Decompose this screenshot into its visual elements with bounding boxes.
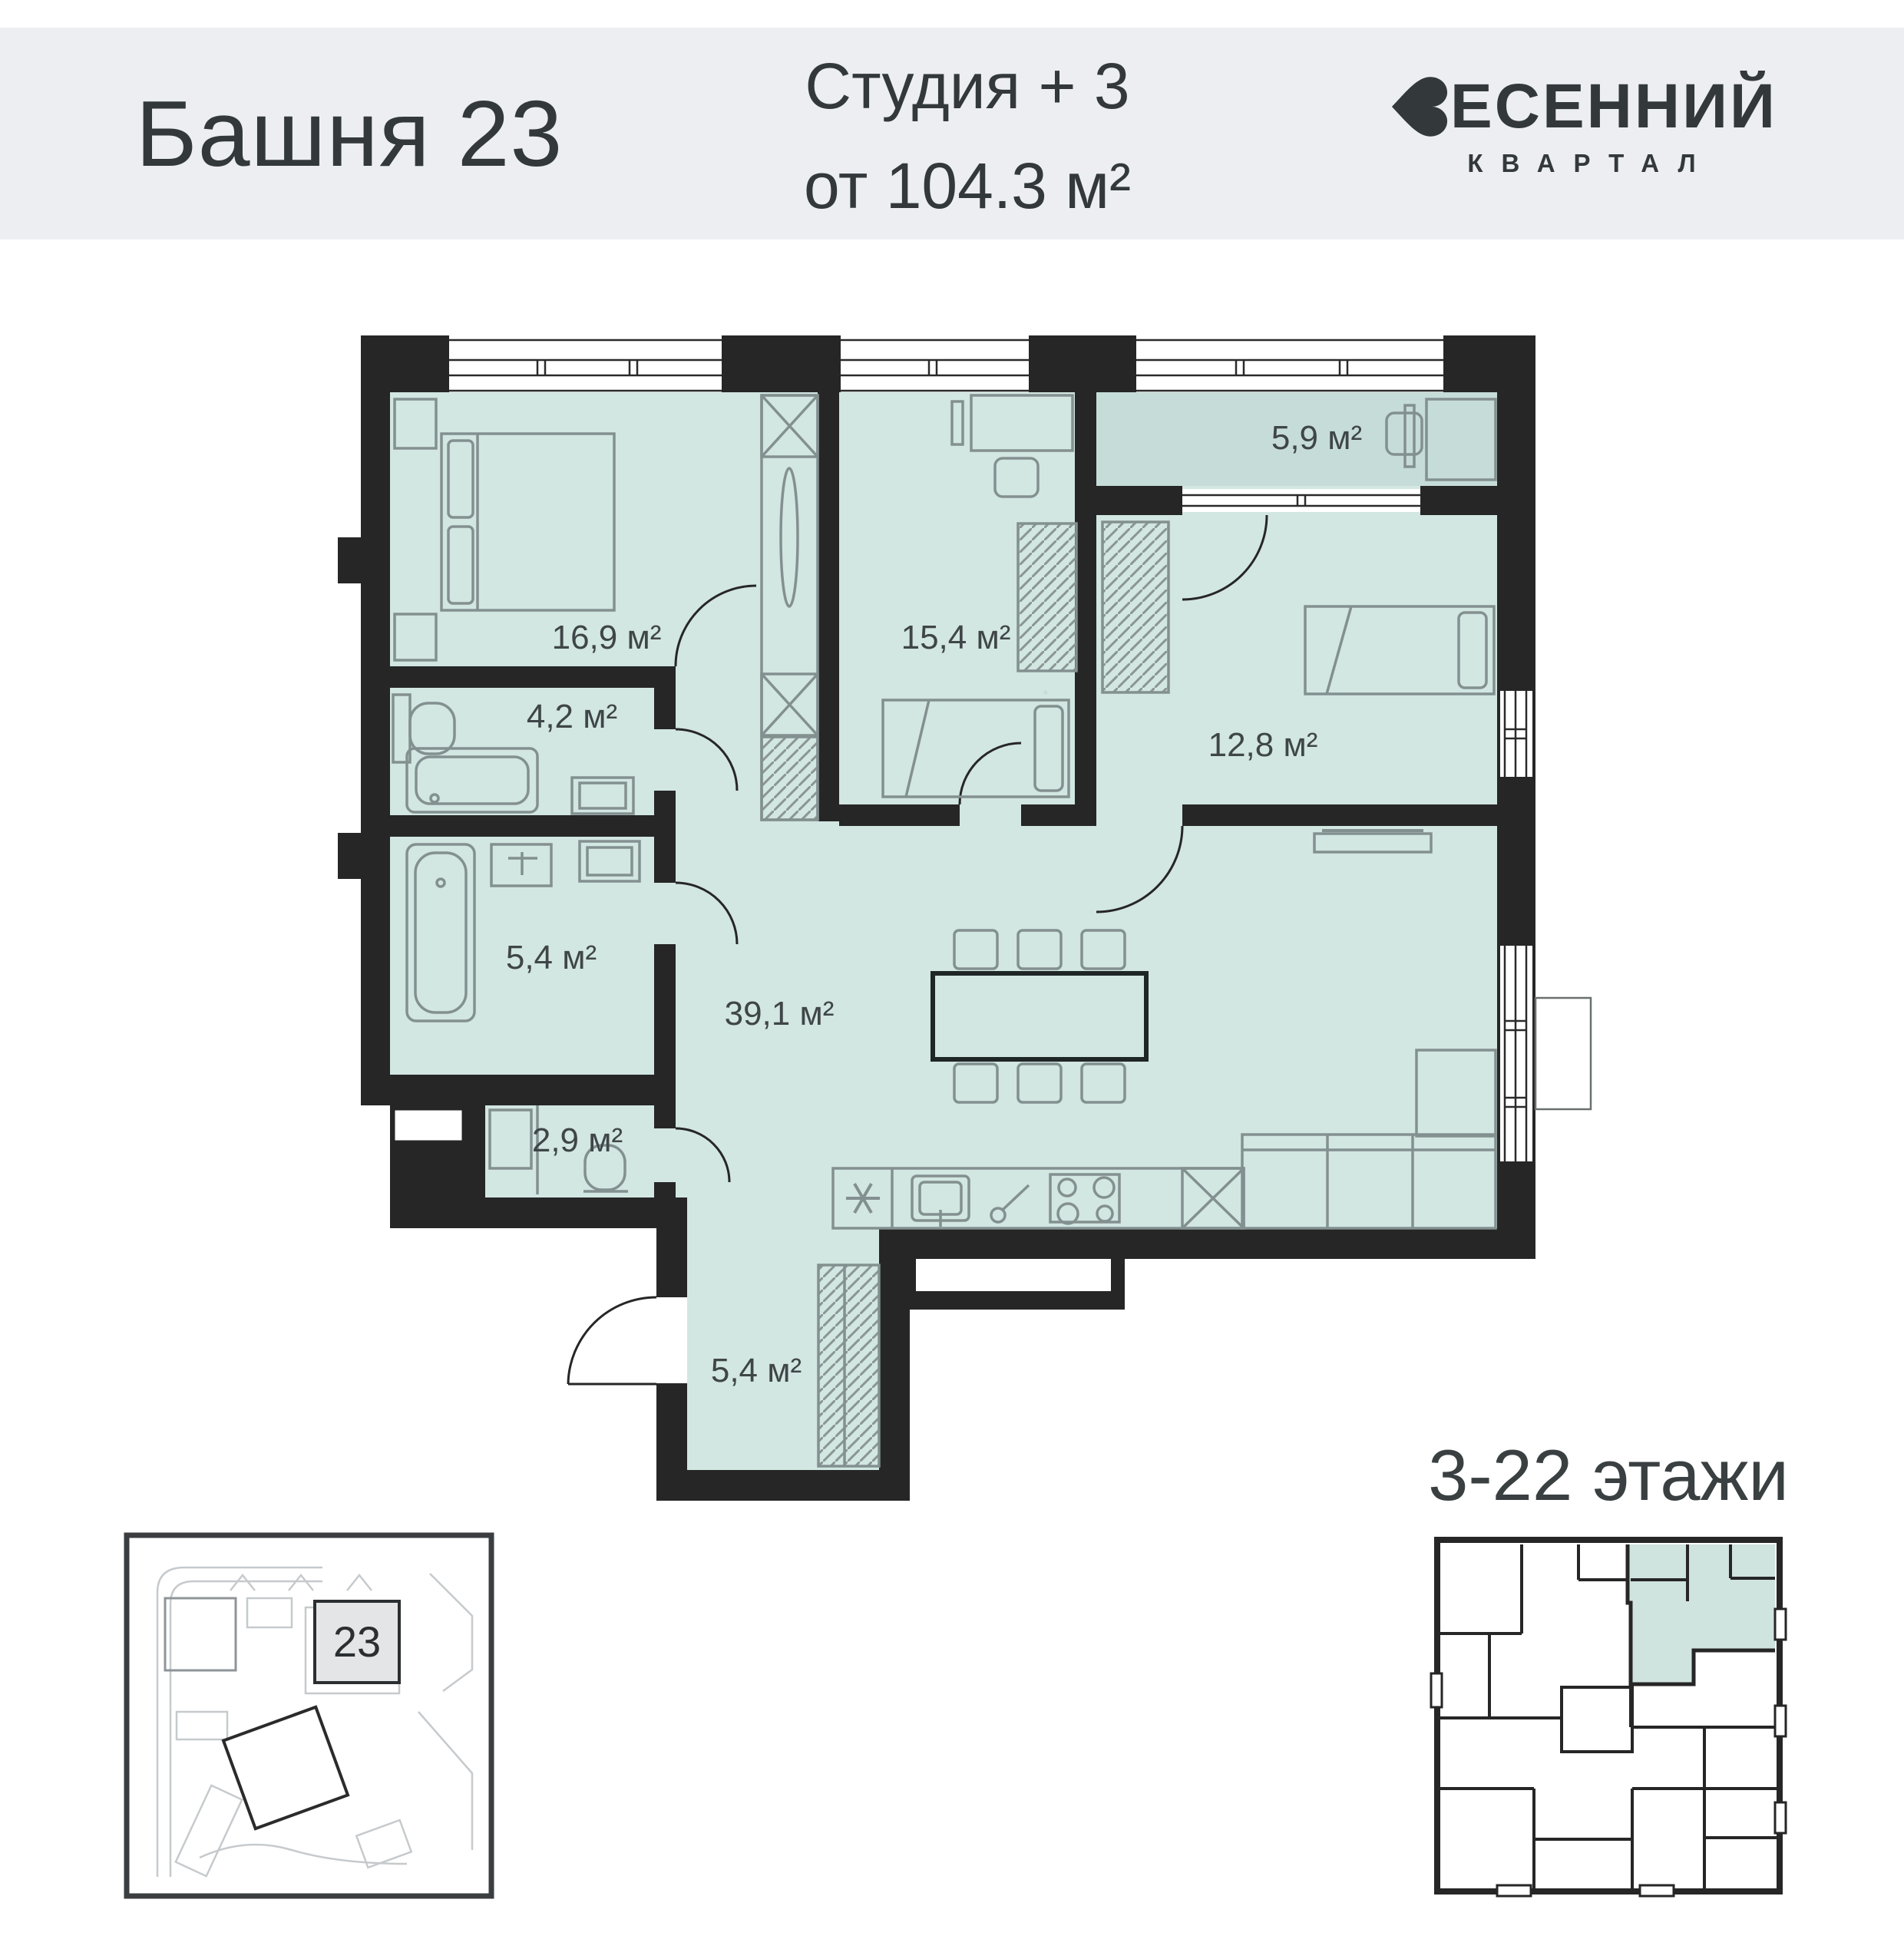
window-top-balcony [1136,335,1443,392]
site-plan: 23 [127,1535,491,1896]
window-right-bedroom-3 [1500,691,1532,777]
room-label-bathroom-2: 5,4 м² [506,939,597,976]
floor-plan-canvas: 16,9 м² 4,2 м² 15,4 м² 5,9 м² 12,8 м² 5,… [0,0,1904,1949]
site-building-number: 23 [333,1617,381,1666]
room-label-bedroom-1: 16,9 м² [552,619,662,656]
window-top-bedroom-1 [449,335,722,392]
window-top-bedroom-2 [841,335,1029,392]
kitchen-niche [916,1259,1111,1291]
furniture-hallway [818,1265,879,1466]
floor-plate [1431,1540,1786,1896]
flyer-page: Башня 23 Студия + 3 от 104.3 м² ЕСЕННИЙ … [0,0,1904,1949]
room-label-bathroom-1: 4,2 м² [527,698,617,735]
window-right-living [1500,946,1532,1161]
apartment-plan: 16,9 м² 4,2 м² 15,4 м² 5,9 м² 12,8 м² 5,… [338,335,1591,1501]
room-label-living: 39,1 м² [725,995,835,1032]
room-label-hallway: 5,4 м² [711,1352,802,1389]
exterior-balcony-slab [1535,998,1591,1109]
window-balcony-inner [1182,489,1420,512]
room-label-bedroom-3: 12,8 м² [1208,726,1318,764]
room-label-balcony: 5,9 м² [1271,419,1362,457]
room-label-wc: 2,9 м² [532,1122,623,1159]
entry-opening [656,1297,687,1383]
utility-shaft [393,1108,464,1142]
room-label-bedroom-2: 15,4 м² [901,619,1011,656]
